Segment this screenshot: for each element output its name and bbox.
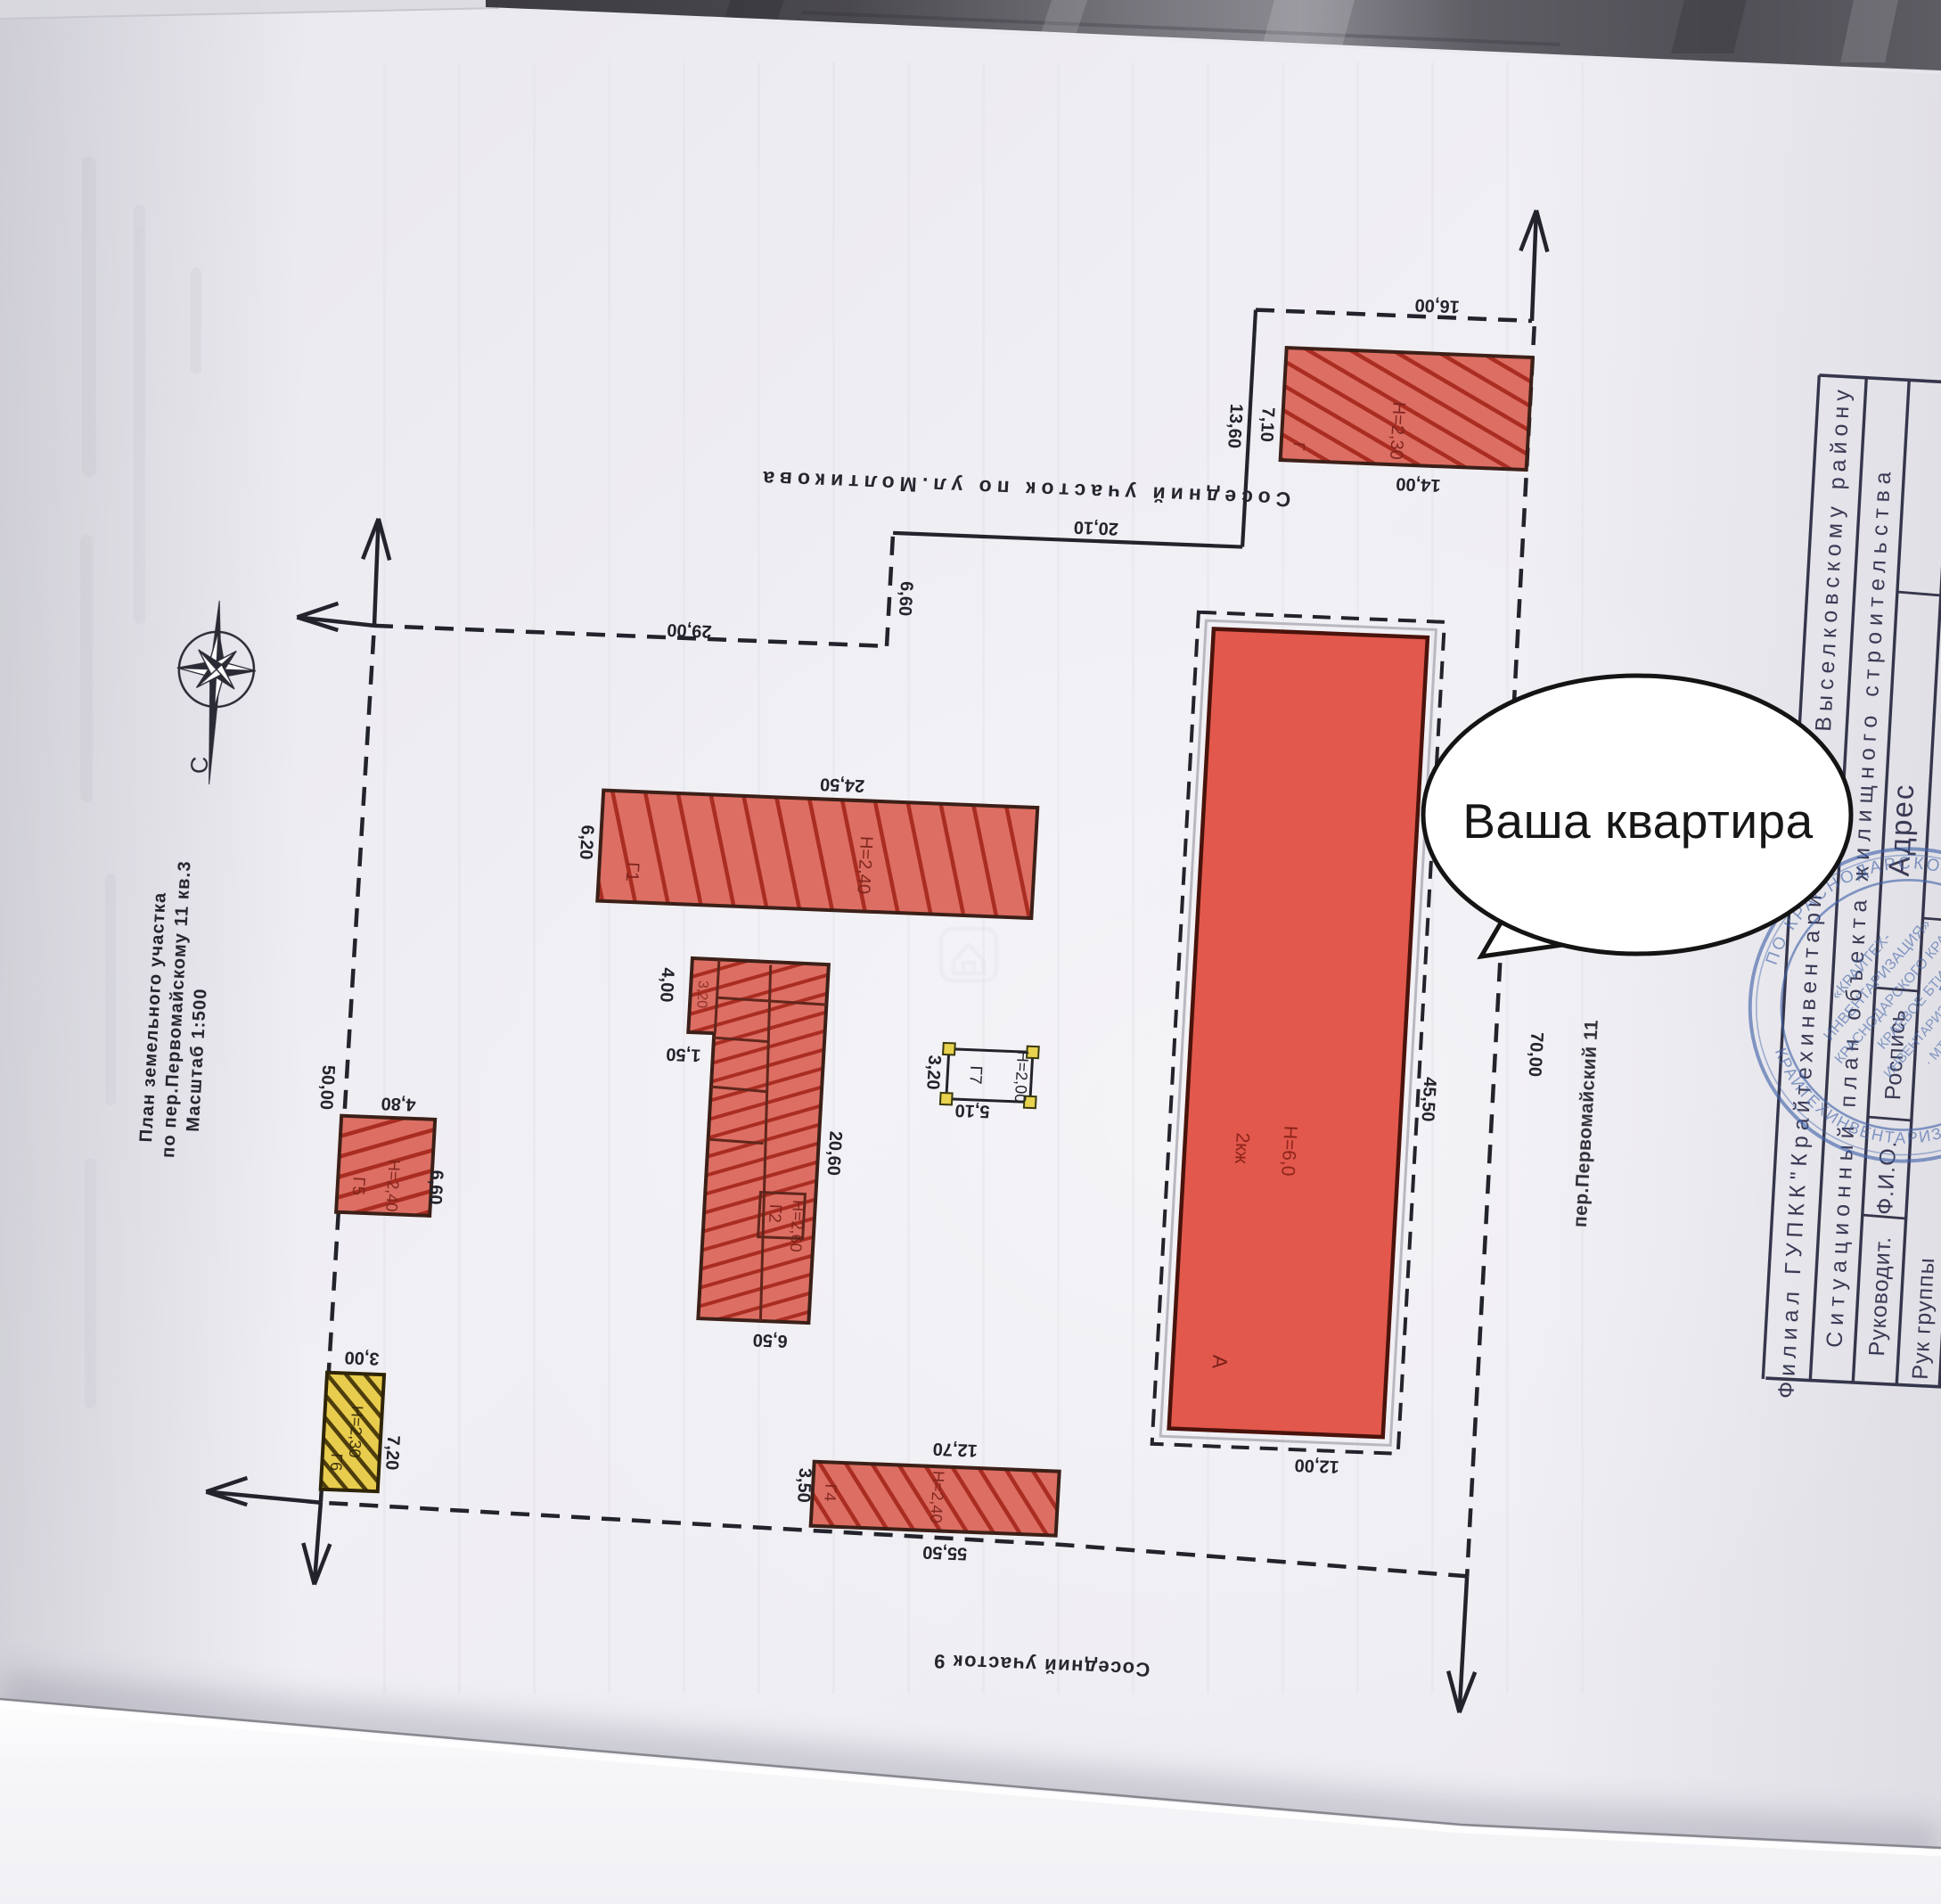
svg-text:20,60: 20,60 (823, 1130, 846, 1176)
svg-text:6,60: 6,60 (895, 581, 916, 617)
svg-text:6,60: 6,60 (425, 1169, 446, 1205)
svg-text:13,60: 13,60 (1224, 403, 1246, 448)
svg-text:6,50: 6,50 (752, 1330, 788, 1351)
svg-text:3,00: 3,00 (344, 1347, 380, 1368)
svg-text:50,00: 50,00 (316, 1064, 339, 1110)
svg-text:29,00: 29,00 (667, 620, 712, 641)
svg-text:4,80: 4,80 (381, 1093, 416, 1114)
svg-text:Н=2,40: Н=2,40 (927, 1471, 947, 1523)
svg-text:Г4: Г4 (821, 1483, 839, 1502)
svg-text:14,00: 14,00 (1396, 473, 1441, 495)
svg-text:Н=2,60: Н=2,60 (787, 1200, 807, 1252)
svg-text:Ф.И.О.: Ф.И.О. (1872, 1140, 1902, 1215)
svg-text:Н=2,30: Н=2,30 (346, 1405, 366, 1457)
svg-text:45,50: 45,50 (1418, 1077, 1440, 1122)
svg-text:24,50: 24,50 (820, 774, 865, 795)
svg-text:Г5: Г5 (348, 1177, 368, 1196)
svg-text:70,00: 70,00 (1525, 1032, 1547, 1078)
svg-text:Г1: Г1 (622, 862, 643, 882)
svg-text:7,20: 7,20 (381, 1435, 403, 1471)
svg-text:12,70: 12,70 (932, 1439, 978, 1460)
svg-text:6,20: 6,20 (576, 825, 597, 860)
svg-text:Г6: Г6 (327, 1453, 346, 1472)
svg-text:Н=2,40: Н=2,40 (382, 1159, 403, 1211)
svg-text:С: С (185, 756, 213, 775)
svg-text:Н=6,0: Н=6,0 (1277, 1125, 1300, 1177)
svg-text:1,50: 1,50 (666, 1044, 701, 1065)
svg-text:5,10: 5,10 (954, 1100, 990, 1121)
svg-text:7,10: 7,10 (1257, 406, 1278, 442)
svg-text:3,50: 3,50 (793, 1467, 815, 1503)
svg-text:Ваша квартира: Ваша квартира (1462, 793, 1814, 849)
svg-text:16,00: 16,00 (1414, 295, 1460, 316)
svg-text:Г: Г (1290, 442, 1308, 452)
svg-text:20,10: 20,10 (1073, 517, 1118, 538)
svg-text:55,50: 55,50 (922, 1542, 968, 1563)
svg-text:Н=2,30: Н=2,30 (1386, 401, 1409, 460)
svg-text:А: А (1208, 1354, 1233, 1369)
svg-text:Н=2,00: Н=2,00 (1011, 1050, 1032, 1103)
svg-text:Н=2,40: Н=2,40 (853, 836, 876, 895)
svg-text:2кж: 2кж (1231, 1132, 1253, 1164)
svg-text:3,20: 3,20 (922, 1055, 944, 1090)
svg-text:Г7: Г7 (965, 1065, 985, 1085)
svg-text:12,00: 12,00 (1294, 1455, 1339, 1476)
svg-text:3,20: 3,20 (693, 981, 710, 1009)
svg-text:4,00: 4,00 (656, 967, 677, 1003)
svg-text:Г2: Г2 (765, 1203, 784, 1223)
